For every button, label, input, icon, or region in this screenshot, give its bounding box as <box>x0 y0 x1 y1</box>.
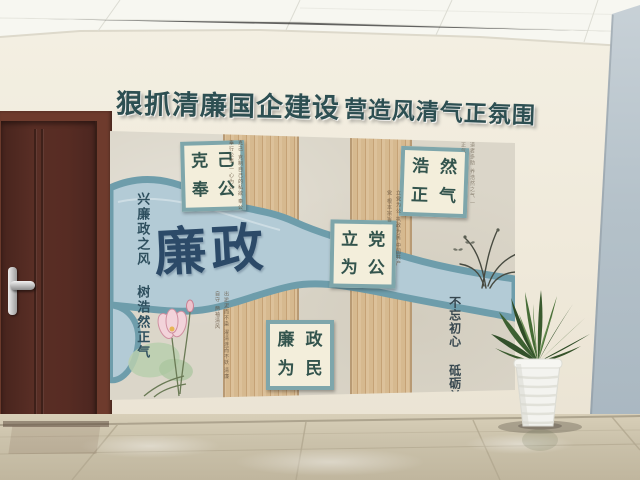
door-handle-plate <box>8 267 17 315</box>
plant-leaves <box>491 290 590 362</box>
culture-display-wall: 廉政 兴廉政之风 树浩然正气 不忘初心 砥砺前行 克 己 奉 公 浩 然 正 气… <box>110 128 515 400</box>
plaque-char: 公 <box>368 258 385 279</box>
plaque-char: 民 <box>306 359 323 379</box>
door <box>1 121 95 425</box>
ceiling <box>0 0 640 56</box>
orchid-painting <box>452 224 524 290</box>
banner-text-left: 狠抓清廉国企建设 <box>116 82 341 126</box>
plaque-char: 立 <box>341 229 358 250</box>
slogan-column: 砥砺前行 <box>448 364 462 416</box>
right-vertical-slogan: 不忘初心 砥砺前行 <box>446 296 462 386</box>
plaque-char: 克 <box>191 151 209 172</box>
slogan-column: 树浩然正气 <box>135 285 150 360</box>
fine-print-note: 出淤泥而不染 濯清涟而不妖 清廉自守 两袖清风 <box>212 291 230 383</box>
fine-print-note: 得道者多助 养浩然之气 一身正气 <box>458 136 476 210</box>
slogan-column: 不忘初心 <box>448 296 462 348</box>
slogan-column: 兴廉政之风 <box>135 192 150 267</box>
plaque-lianzheng-weimin: 廉 政 为 民 <box>266 320 334 390</box>
photo-scene: 狠抓清廉国企建设 营造风清气正氛围 <box>0 0 640 480</box>
plaque-char: 为 <box>341 257 358 278</box>
plaque-char: 气 <box>439 186 457 207</box>
plaque-char: 浩 <box>412 157 430 178</box>
door-gap <box>95 121 97 425</box>
headline-lianzheng: 廉政 <box>152 205 270 286</box>
door-groove <box>34 129 36 417</box>
door-groove <box>41 129 43 417</box>
potted-plant <box>483 288 595 430</box>
plaque-char: 然 <box>440 158 458 179</box>
door-frame <box>0 111 112 426</box>
fine-print-note: 立党为公 执政为民 中国共产党 根本宗旨 <box>384 190 402 272</box>
plaque-char: 政 <box>306 330 323 350</box>
door-handle <box>10 281 35 290</box>
plant-pot <box>511 359 565 426</box>
fine-print-note: 克己 克制自己的私欲 奉公 奉行公事 一心为公 <box>226 140 244 216</box>
left-vertical-slogan: 兴廉政之风 树浩然正气 <box>134 192 150 307</box>
plaque-char: 党 <box>368 230 385 251</box>
banner-text-right: 营造风清气正氛围 <box>343 90 536 131</box>
plaque-char: 奉 <box>192 180 210 201</box>
plaque-char: 廉 <box>278 330 295 350</box>
plaque-char: 为 <box>278 359 295 379</box>
plaque-char: 正 <box>411 186 429 207</box>
